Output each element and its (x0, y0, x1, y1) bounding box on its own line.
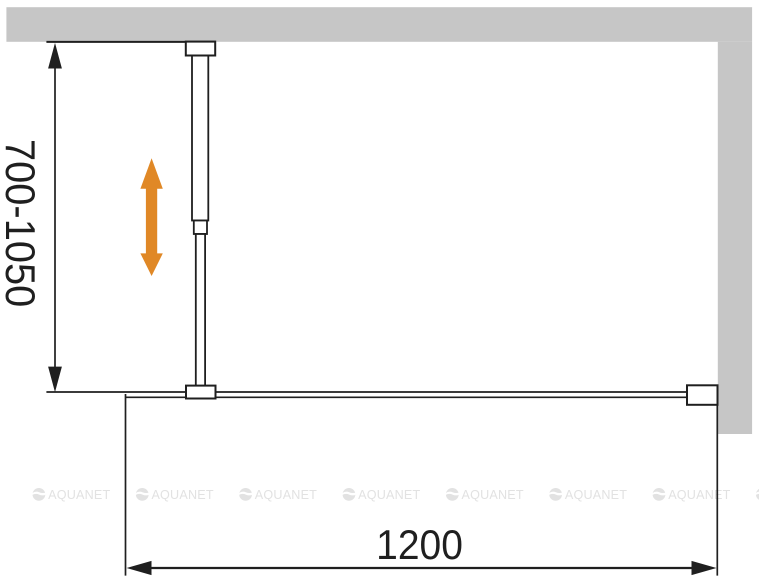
svg-text:700-1050: 700-1050 (0, 139, 44, 307)
svg-text:1200: 1200 (376, 522, 463, 568)
svg-text:AQUANET: AQUANET (48, 488, 110, 502)
